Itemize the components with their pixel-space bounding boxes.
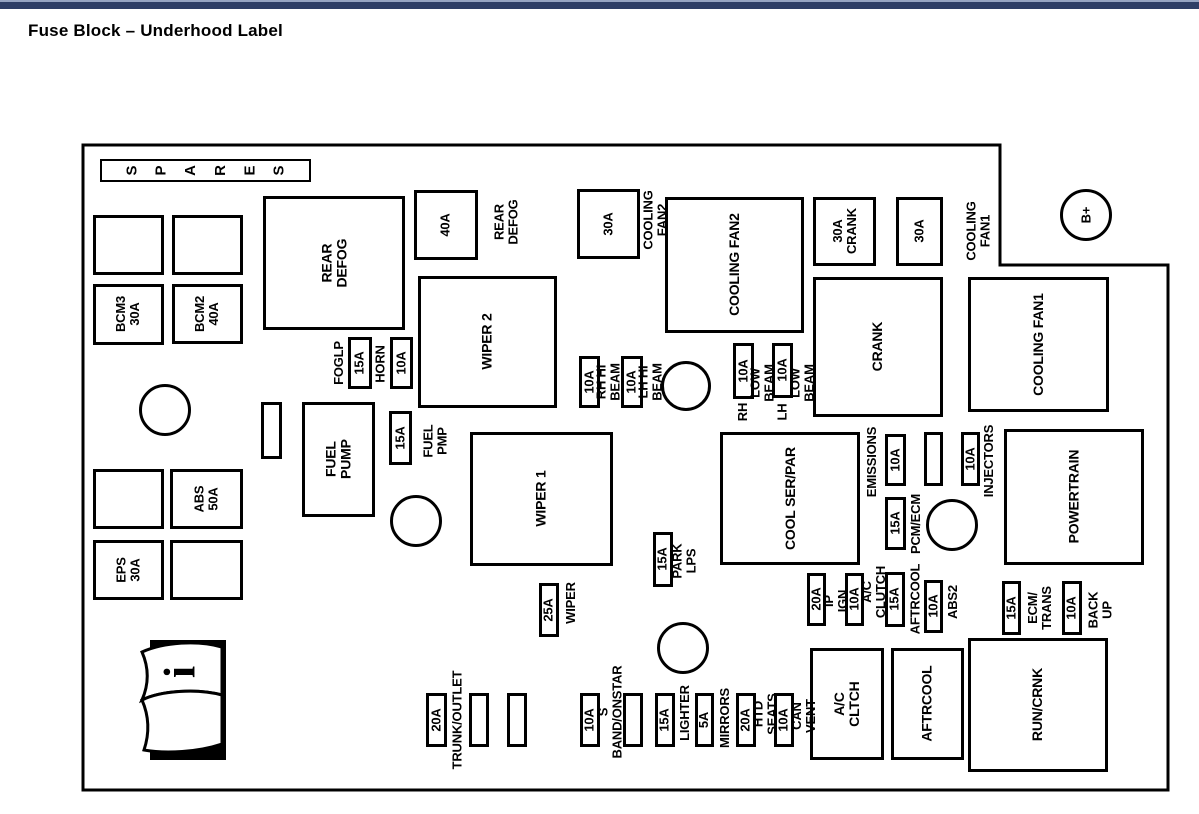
mount-circle-stud-1	[139, 384, 191, 436]
empty-slot-9	[623, 693, 643, 747]
label-back-up: BACK UP	[1084, 577, 1116, 643]
fuse-ecm-trans-15a: 15A	[1002, 581, 1021, 635]
rotated-text: 20A	[429, 708, 443, 731]
spares-letter: R	[212, 165, 229, 176]
rotated-text: EMISSIONS	[865, 427, 879, 497]
rotated-text: INJECTORS	[982, 425, 996, 497]
fuse-emissions-10a: 10A	[885, 434, 906, 486]
rotated-text: WIPER 2	[480, 314, 495, 370]
relay-aftrcool: AFTRCOOL	[891, 648, 964, 760]
label-htd-seats: HTD SEATS	[757, 668, 774, 760]
rotated-text: ECM/ TRANS	[1026, 586, 1054, 630]
rotated-text: IP IGN	[822, 590, 850, 613]
rotated-text: RUN/CRNK	[1030, 668, 1045, 741]
label-low-beam-rh: LOW BEAM	[755, 336, 771, 430]
spares-letter: P	[153, 165, 170, 175]
rotated-text: WIPER	[564, 582, 578, 624]
rotated-text: RH HI BEAM	[594, 363, 622, 400]
fuse-abs2-10a: 10A	[924, 580, 943, 633]
spares-letter: S	[270, 165, 287, 175]
rotated-text: REAR DEFOG	[319, 239, 349, 288]
label-ac-clutch: A/C CLUTCH	[866, 549, 882, 635]
label-s-band-onstar: S BAND/ONSTAR	[601, 648, 619, 776]
fuse-injectors-10a: 10A	[961, 432, 980, 486]
fuse-lighter-15a: 15A	[655, 693, 675, 747]
label-cooling-fan2: COOLING FAN2	[646, 160, 666, 280]
relay-crank: CRANK	[813, 277, 943, 417]
fuse-eps-30a: EPS 30A	[93, 540, 164, 600]
info-book-icon: i	[136, 638, 228, 762]
fuse-abs-50a: ABS 50A	[170, 469, 243, 529]
rotated-text: 10A	[1065, 596, 1079, 619]
rotated-text: LIGHTER	[678, 685, 692, 741]
label-foglp: FOGLP	[330, 336, 347, 390]
rotated-text: PCM/ECM	[908, 494, 922, 554]
fuse-mirrors-5a: 5A	[695, 693, 714, 747]
rotated-text: B+	[1079, 207, 1093, 224]
spares-letter: S	[124, 165, 141, 175]
rotated-text: COOLING FAN1	[1031, 293, 1046, 396]
rotated-text: 15A	[658, 708, 672, 731]
rotated-text: REAR DEFOG	[493, 199, 521, 244]
relay-rear-defog: REAR DEFOG	[263, 196, 405, 330]
empty-slot-8	[507, 693, 527, 747]
rotated-text: 10A	[394, 351, 408, 374]
rotated-text: FUEL PMP	[422, 424, 450, 457]
fuse-rear-defog-40a: 40A	[414, 190, 478, 260]
relay-wiper-1: WIPER 1	[470, 432, 613, 566]
label-horn: HORN	[372, 338, 389, 390]
rotated-text: LH	[775, 404, 789, 421]
label-cooling-fan1: COOLING FAN1	[958, 194, 1000, 268]
fuse-back-up-10a: 10A	[1062, 581, 1082, 635]
fuse-wiper-25a: 25A	[539, 583, 559, 637]
label-rear-defog: REAR DEFOG	[484, 190, 530, 254]
rotated-text: HORN	[373, 345, 387, 382]
fuse-bcm2-40a: BCM2 40A	[172, 284, 243, 344]
rotated-text: A/C CLUTCH	[860, 566, 888, 618]
rotated-text: COOLING FAN2	[727, 214, 742, 317]
rotated-text: 5A	[697, 712, 711, 728]
rotated-text: AFTRCOOL	[920, 666, 935, 742]
fuse-trunk-outlet-20a: 20A	[426, 693, 447, 747]
rotated-text: 25A	[542, 598, 556, 621]
label-fuel-pmp: FUEL PMP	[414, 407, 458, 475]
mount-circle-stud-3	[661, 361, 711, 411]
rotated-text: AFTRCOOL	[908, 564, 922, 635]
fuse-foglp-15a: 15A	[348, 337, 372, 389]
empty-slot-6	[924, 432, 943, 486]
label-can-vent: CAN VENT	[795, 670, 812, 762]
label-injectors: INJECTORS	[981, 414, 998, 508]
rotated-text: BCM3 30A	[114, 296, 142, 332]
rotated-text: 30A CRANK	[830, 209, 858, 255]
empty-slot-7	[469, 693, 489, 747]
empty-slot-5	[261, 402, 282, 459]
rotated-text: COOLING FAN1	[965, 201, 993, 260]
label-lh-hi-beam: LH HI BEAM	[642, 332, 659, 432]
rotated-text: PARK LPS	[671, 543, 699, 578]
empty-slot-4	[170, 540, 243, 600]
label-lighter: LIGHTER	[677, 668, 693, 758]
label-wiper: WIPER	[562, 570, 580, 636]
relay-powertrain: POWERTRAIN	[1004, 429, 1144, 565]
fuse-block-diagram: SPARES i REAR DEFOGWIPER 2FUEL PUMPCOOLI…	[0, 0, 1199, 814]
rotated-text: 15A	[353, 351, 367, 374]
rotated-text: RH	[736, 403, 750, 421]
rotated-text: A/C CLTCH	[832, 670, 862, 738]
rotated-text: HTD SEATS	[751, 693, 779, 734]
rotated-text: FOGLP	[331, 341, 345, 385]
rotated-text: 15A	[393, 426, 407, 449]
spares-box: SPARES	[100, 159, 311, 182]
info-letter: i	[156, 666, 205, 678]
relay-run-crnk: RUN/CRNK	[968, 638, 1108, 772]
fuse-fuel-pmp-15a: 15A	[389, 411, 412, 465]
label-lh: LH	[772, 398, 793, 426]
rotated-text: BCM2 40A	[193, 296, 221, 332]
rotated-text: 10A	[888, 448, 902, 471]
rotated-text: CRANK	[870, 322, 885, 372]
label-trunk-outlet: TRUNK/OUTLET	[448, 650, 466, 790]
rotated-text: CAN VENT	[789, 699, 817, 733]
fuse-cooling-fan2-30a: 30A	[577, 189, 640, 259]
rotated-text: COOL SER/PAR	[782, 447, 797, 550]
rotated-text: 15A	[888, 588, 902, 611]
rotated-text: COOLING FAN2	[642, 190, 670, 249]
empty-slot-3	[93, 469, 164, 529]
label-ecm-trans: ECM/ TRANS	[1023, 575, 1057, 641]
rotated-text: 15A	[656, 548, 670, 571]
rotated-text: EPS 30A	[114, 557, 142, 582]
rotated-text: 10A	[963, 447, 977, 470]
rotated-text: 15A	[1004, 596, 1018, 619]
rotated-text: WIPER 1	[534, 471, 549, 527]
relay-wiper-2: WIPER 2	[418, 276, 557, 408]
label-ip-ign: IP IGN	[828, 570, 844, 632]
label-rh: RH	[733, 398, 754, 426]
mount-circle-stud-2	[390, 495, 442, 547]
rotated-text: 30A	[912, 220, 926, 243]
label-mirrors: MIRRORS	[716, 672, 733, 764]
fuse-bcm3-30a: BCM3 30A	[93, 284, 164, 345]
terminal-b-plus: B+	[1060, 189, 1112, 241]
fuse-horn-10a: 10A	[390, 337, 413, 389]
relay-cooling-fan2: COOLING FAN2	[665, 197, 804, 333]
rotated-text: S BAND/ONSTAR	[596, 666, 624, 759]
label-aftrcool: AFTRCOOL	[907, 556, 923, 642]
rotated-text: ABS2	[946, 585, 960, 619]
rotated-text: LOW BEAM	[789, 364, 817, 401]
label-park-lps: PARK LPS	[676, 523, 694, 599]
rotated-text: TRUNK/OUTLET	[450, 671, 464, 770]
rotated-text: POWERTRAIN	[1066, 450, 1081, 544]
spares-letter: E	[241, 165, 258, 175]
spares-letter: A	[182, 165, 199, 176]
book-bottom-page	[142, 691, 222, 752]
rotated-text: LOW BEAM	[749, 364, 777, 401]
relay-fuel-pump: FUEL PUMP	[302, 402, 375, 517]
rotated-text: 10A	[926, 595, 940, 618]
fuse-crank-30a: 30A CRANK	[813, 197, 876, 266]
rotated-text: BACK UP	[1086, 592, 1114, 629]
rotated-text: 40A	[439, 213, 453, 236]
mount-circle-stud-4	[657, 622, 709, 674]
relay-cool-ser-par: COOL SER/PAR	[720, 432, 860, 565]
mount-circle-stud-5	[926, 499, 978, 551]
rotated-text: FUEL PUMP	[323, 440, 353, 480]
rotated-text: ABS 50A	[192, 486, 220, 513]
label-emissions: EMISSIONS	[864, 416, 881, 508]
rotated-text: MIRRORS	[717, 688, 731, 748]
rotated-text: 15A	[888, 512, 902, 535]
relay-cooling-fan1: COOLING FAN1	[968, 277, 1109, 412]
label-rh-hi-beam: RH HI BEAM	[600, 332, 617, 432]
empty-slot-2	[172, 215, 243, 275]
label-low-beam-lh: LOW BEAM	[795, 336, 811, 430]
label-abs2: ABS2	[945, 577, 961, 627]
relay-ac-cltch: A/C CLTCH	[810, 648, 884, 760]
fuse-cooling-fan1-30a: 30A	[896, 197, 943, 266]
rotated-text: 30A	[601, 212, 615, 235]
fuse-pcm-ecm-15a: 15A	[885, 497, 906, 550]
empty-slot-1	[93, 215, 164, 275]
page: Fuse Block – Underhood Label SPARES i RE…	[0, 0, 1199, 814]
